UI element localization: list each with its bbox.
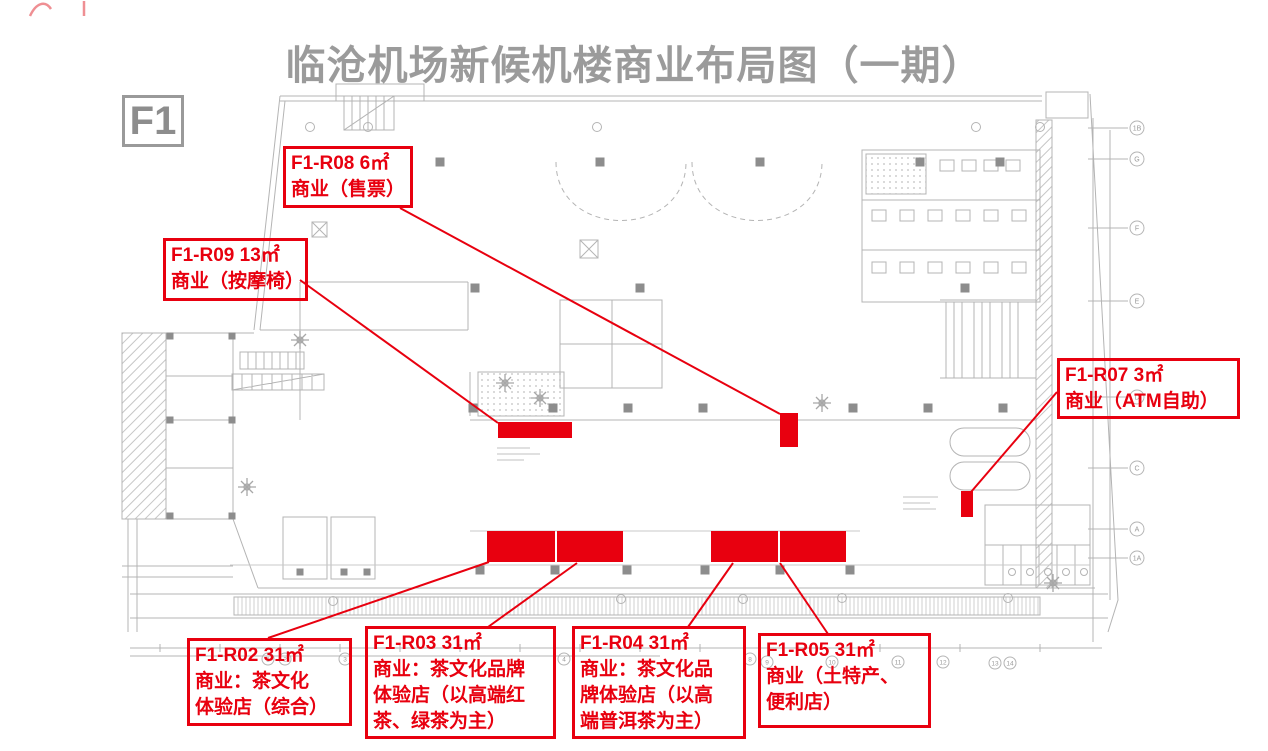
plan-columns	[167, 158, 1008, 576]
slide-canvas: 1B G F E D C A 1A 1 2 3 4 8 9 10 11 12 1…	[0, 0, 1268, 751]
commercial-area-r02	[487, 531, 555, 562]
commercial-areas	[487, 413, 973, 562]
grid-number: 4	[562, 657, 566, 664]
annotation-label-f1-r04: F1-R04 31㎡ 商业：茶文化品 牌体验店（以高 端普洱茶为主）	[572, 626, 746, 739]
commercial-area-r08	[780, 413, 798, 447]
grid-letter: F	[1135, 226, 1139, 233]
page-title: 临沧机场新候机楼商业布局图（一期）	[0, 33, 1268, 91]
grid-letter: E	[1135, 299, 1140, 306]
leader-line-r04	[688, 563, 733, 627]
grid-letter: 1B	[1133, 126, 1142, 133]
grid-letter: C	[1134, 466, 1139, 473]
grid-number: 12	[939, 660, 947, 667]
annotation-label-f1-r08: F1-R08 6㎡ 商业（售票）	[283, 146, 413, 208]
annotation-label-f1-r02: F1-R02 31㎡ 商业：茶文化 体验店（综合）	[187, 638, 352, 726]
grid-letter: A	[1135, 527, 1140, 534]
commercial-area-r04	[711, 531, 778, 562]
floor-badge: F1	[122, 95, 184, 147]
leader-line-r03	[488, 563, 577, 627]
grid-letter: 1A	[1133, 556, 1142, 563]
grid-bubbles-right	[1130, 121, 1144, 565]
leader-line-r08	[400, 208, 780, 414]
grid-letter: G	[1134, 157, 1139, 164]
annotation-label-f1-r05: F1-R05 31㎡ 商业（土特产、 便利店）	[758, 633, 931, 728]
commercial-area-r09	[498, 422, 572, 438]
plant-symbols	[238, 331, 1062, 592]
commercial-area-r05	[780, 531, 846, 562]
annotation-label-f1-r07: F1-R07 3㎡ 商业（ATM自助）	[1057, 358, 1240, 419]
commercial-area-r03	[557, 531, 623, 562]
grid-number: 13	[991, 661, 999, 668]
commercial-area-r07	[961, 491, 973, 517]
grid-number: 8	[748, 657, 752, 664]
grid-number: 14	[1006, 661, 1014, 668]
annotation-label-f1-r09: F1-R09 13㎡ 商业（按摩椅）	[163, 238, 308, 301]
annotation-label-f1-r03: F1-R03 31㎡ 商业：茶文化品牌 体验店（以高端红 茶、绿茶为主）	[365, 626, 556, 739]
grid-letters: 1B G F E D C A 1A	[1133, 126, 1142, 563]
